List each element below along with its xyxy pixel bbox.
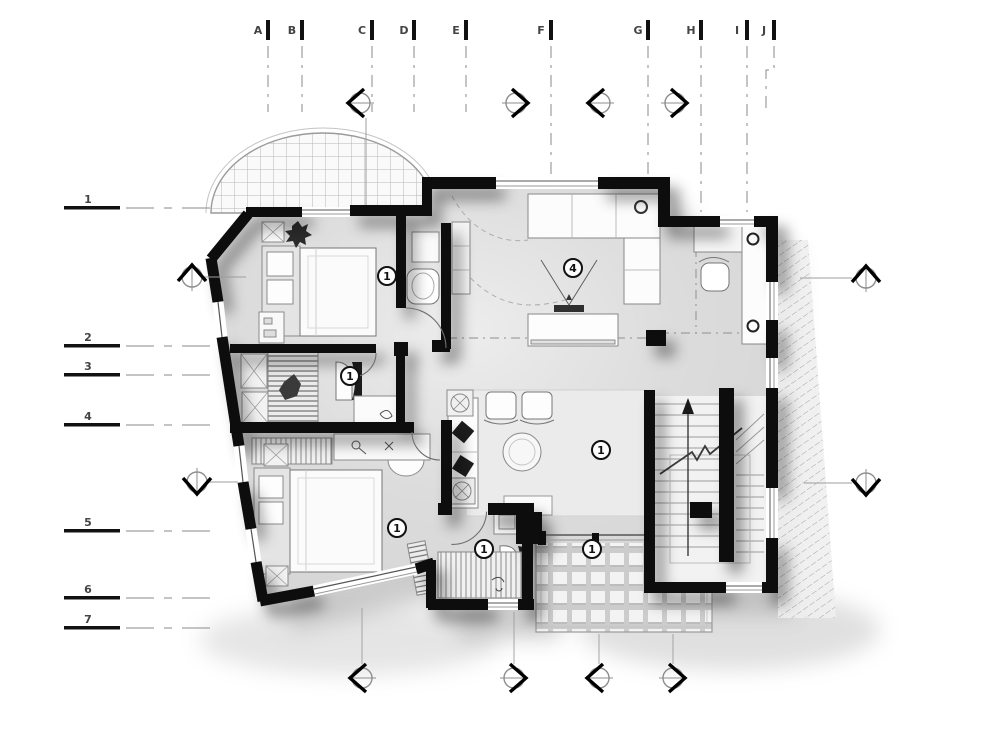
grid-rows: 1 2 3 4 5 6 7 (64, 193, 214, 630)
grid-col-D: D (399, 20, 416, 112)
grid-number: 7 (84, 613, 92, 626)
grid-number: 4 (84, 410, 92, 423)
grid-col-F: F (537, 20, 553, 174)
coffee-table (503, 433, 541, 471)
room-tag-label: 1 (588, 543, 596, 556)
grid-letter: H (686, 24, 695, 37)
room-tag-bathroom: 1 (475, 540, 493, 558)
grid-col-H: H (686, 20, 703, 212)
grid-letter: B (288, 24, 296, 37)
grid-row-7: 7 (64, 613, 214, 630)
grid-col-G: G (633, 20, 650, 174)
room-tag-bedroom-2: 1 (388, 519, 406, 537)
floor-plan-drawing: A B C D E F G H I J 1 2 3 4 5 6 7 1 1 4 … (0, 0, 1000, 756)
grid-letter: D (399, 24, 408, 37)
stair-floor (652, 396, 766, 584)
room-tag-bedroom-1: 1 (378, 267, 396, 285)
grid-letter: A (254, 24, 263, 37)
grid-row-2: 2 (64, 331, 214, 348)
room-tag-label: 1 (393, 522, 401, 535)
grid-row-5: 5 (64, 516, 214, 533)
floor-plan-sheet: A B C D E F G H I J 1 2 3 4 5 6 7 1 1 4 … (0, 0, 1000, 756)
grid-col-J: J (761, 20, 776, 112)
room-tag-dining: 1 (592, 441, 610, 459)
grid-col-C: C (358, 20, 374, 112)
room-tag-wc: 1 (341, 367, 359, 385)
section-marker-top-1 (346, 89, 374, 117)
section-marker-top-3 (586, 89, 614, 117)
section-marker-top-4 (661, 89, 689, 117)
grid-number: 6 (84, 583, 92, 596)
room-tag-label: 1 (383, 270, 391, 283)
grid-number: 1 (84, 193, 92, 206)
grid-col-E: E (452, 20, 468, 112)
bed-2 (254, 468, 382, 574)
grid-number: 3 (84, 360, 92, 373)
wc-sink (354, 396, 398, 424)
grid-letter: J (761, 24, 766, 37)
section-marker-top-2 (502, 89, 530, 117)
grid-letter: I (735, 24, 739, 37)
grid-number: 5 (84, 516, 92, 529)
grid-col-I: I (735, 20, 749, 212)
grid-letter: F (537, 24, 545, 37)
section-marker-left-2 (183, 468, 238, 496)
grid-letter: C (358, 24, 366, 37)
closet-cabinets (241, 354, 268, 423)
room-tag-label: 4 (569, 262, 577, 275)
room-tag-label: 1 (346, 370, 354, 383)
section-marker-right-1 (800, 264, 880, 292)
grid-row-3: 3 (64, 360, 214, 377)
shower-floor (438, 552, 522, 598)
grid-row-4: 4 (64, 410, 214, 427)
room-tag-terrace: 1 (583, 540, 601, 558)
hall-basin (407, 269, 439, 304)
grid-letter: G (633, 24, 642, 37)
exterior-hatch-strip (778, 240, 836, 618)
grid-number: 2 (84, 331, 92, 344)
terrace-semicircle (206, 118, 440, 213)
shelf-unit (452, 222, 470, 294)
grid-col-A: A (254, 20, 270, 112)
grid-letter: E (452, 24, 460, 37)
hall-cabinet (412, 232, 439, 262)
room-tag-label: 1 (480, 543, 488, 556)
dresser-1 (259, 312, 284, 343)
grid-col-B: B (288, 20, 304, 112)
grid-row-1: 1 (64, 193, 214, 210)
room-tag-living: 4 (564, 259, 582, 277)
room-tag-label: 1 (597, 444, 605, 457)
grid-row-6: 6 (64, 583, 214, 600)
